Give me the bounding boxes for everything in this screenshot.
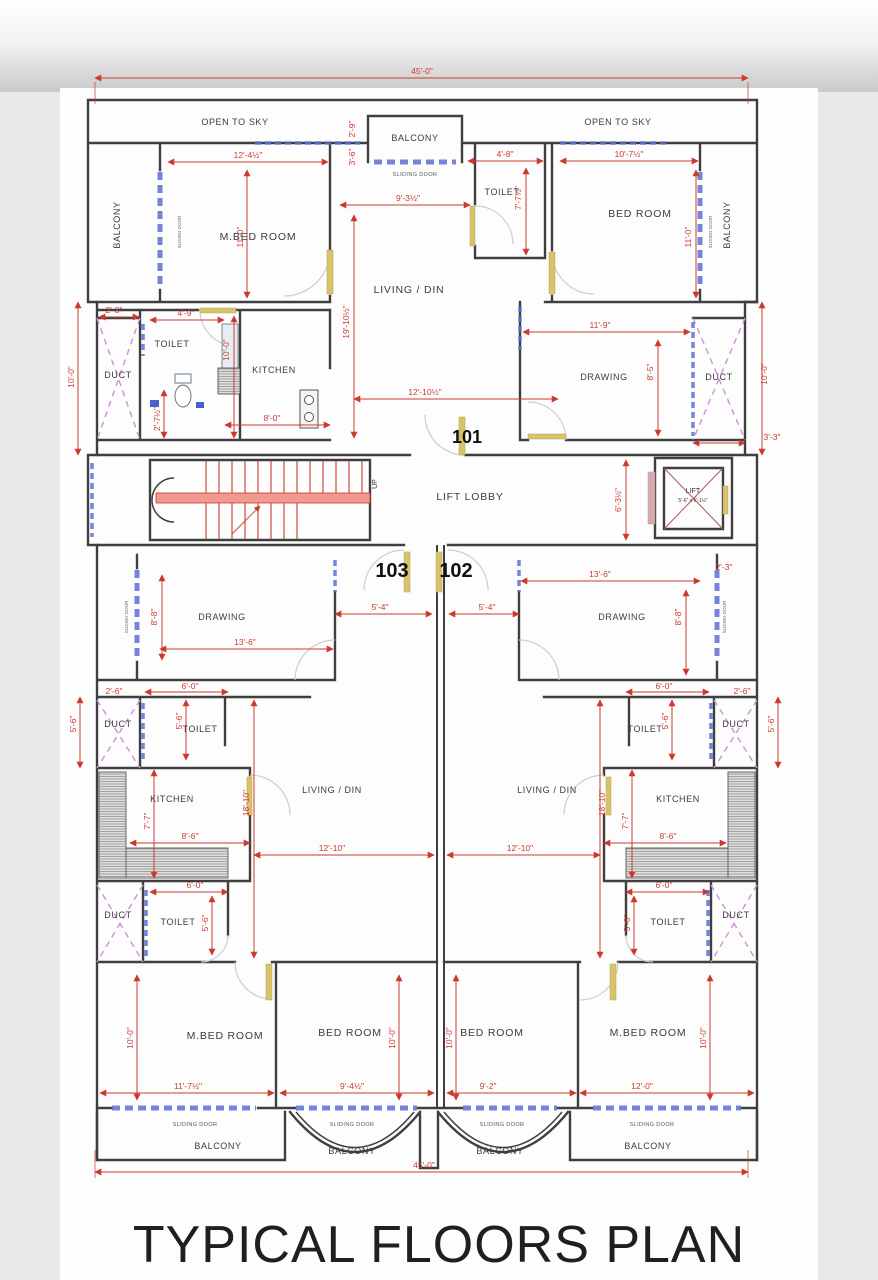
dim-7-7h: 7'-7½"	[513, 186, 523, 210]
dim-9-3: 9'-3½"	[396, 193, 420, 203]
label-living-right: LIVING / DIN	[517, 785, 577, 795]
label-sliding-door-top: SLIDING DOOR	[393, 172, 438, 178]
dim-2-9: 2'-9"	[347, 121, 357, 138]
dim-8-8-left: 8'-8"	[149, 609, 159, 626]
page-title: TYPICAL FLOORS PLAN	[133, 1216, 745, 1274]
dim-4-8: 4'-8"	[497, 149, 514, 159]
dim-2-6-left: 2'-6"	[106, 686, 123, 696]
unit-number-101: 101	[452, 427, 482, 447]
dim-10-0-bed3: 10'-0"	[444, 1027, 454, 1049]
dim-10-0-margin-right: 10'-0"	[759, 363, 769, 385]
counter-hatch	[218, 368, 240, 394]
label-living-upper: LIVING / DIN	[374, 284, 445, 296]
label-toilet-upper-left: TOILET	[155, 339, 190, 349]
floor-plan-canvas: OPEN TO SKY OPEN TO SKY BALCONY SLIDING …	[0, 0, 878, 1280]
label-duct-lower-left: DUCT	[104, 910, 131, 920]
label-kitchen-right: KITCHEN	[656, 794, 700, 804]
burner-icon	[305, 396, 314, 405]
label-toilet-lower-left: TOILET	[161, 917, 196, 927]
dim-8-6-right: 8'-6"	[660, 831, 677, 841]
dim-overall-top: 45'-0"	[411, 66, 433, 76]
wc-icon	[175, 385, 191, 407]
label-mbed-lower-left: M.BED ROOM	[187, 1030, 264, 1042]
dim-5-6-margin-left: 5'-6"	[68, 716, 78, 733]
label-open-to-sky-right: OPEN TO SKY	[584, 117, 651, 127]
label-sliding-door-left: SLIDING DOOR	[177, 215, 182, 249]
dim-3-3: 3'-3"	[764, 432, 781, 442]
label-bed-lower-right: BED ROOM	[460, 1027, 524, 1039]
label-duct-mid-left: DUCT	[104, 719, 131, 729]
label-toilet-lower-right: TOILET	[651, 917, 686, 927]
dim-11-7: 11'-7½"	[174, 1081, 202, 1091]
label-living-left: LIVING / DIN	[302, 785, 362, 795]
label-kitchen-left: KITCHEN	[150, 794, 194, 804]
dim-10-0-bed1: 10'-0"	[125, 1027, 135, 1049]
label-balcony-b2: BALCONY	[328, 1146, 375, 1156]
label-lift: LIFT	[686, 488, 701, 495]
dim-5-6-margin-right: 5'-6"	[766, 716, 776, 733]
label-sliding-door-b1: SLIDING DOOR	[173, 1122, 218, 1128]
label-balcony-right: BALCONY	[722, 201, 732, 248]
label-drawing-lower-left: DRAWING	[198, 612, 245, 622]
label-mbed-upper: M.BED ROOM	[220, 231, 297, 243]
dim-18-10-left: 18'-10"	[241, 790, 251, 816]
dim-2-6-right: 2'-6"	[734, 686, 751, 696]
dim-2-3-lower-right: 2'-3"	[716, 562, 733, 572]
label-toilet-mid-right: TOILET	[628, 724, 663, 734]
label-mbed-lower-right: M.BED ROOM	[610, 1027, 687, 1039]
label-lift-lobby: LIFT LOBBY	[436, 491, 503, 503]
dim-19-10: 19'-10½"	[341, 305, 351, 338]
dim-12-4: 12'-4½"	[234, 150, 263, 160]
lift-door	[648, 472, 655, 524]
dim-4-9: 4'-9"	[178, 308, 195, 318]
dim-12-10-left: 12'-10"	[319, 843, 345, 853]
label-sliding-door-b4: SLIDING DOOR	[630, 1122, 675, 1128]
label-duct-mid-right: DUCT	[722, 719, 749, 729]
label-drawing-upper: DRAWING	[580, 372, 627, 382]
label-duct-lower-right: DUCT	[722, 910, 749, 920]
label-lift-size: 5'-6" x 6'-1½"	[678, 497, 708, 504]
dim-9-4: 9'-4½"	[340, 1081, 364, 1091]
label-balcony-left: BALCONY	[112, 201, 122, 248]
dim-12-0: 12'-0"	[631, 1081, 653, 1091]
label-sliding-door-right: SLIDING DOOR	[708, 215, 713, 249]
dim-10-0-bed2: 10'-0"	[387, 1027, 397, 1049]
wc-tank	[175, 374, 191, 383]
dim-11-0-left: 11'-0"	[235, 226, 245, 247]
label-bed-upper: BED ROOM	[608, 208, 672, 220]
label-toilet-mid-left: TOILET	[183, 724, 218, 734]
label-sliding-door-b2: SLIDING DOOR	[330, 1122, 375, 1128]
label-duct-upper-right: DUCT	[705, 372, 732, 382]
dim-10-0-kitchen: 10'-0"	[221, 339, 231, 361]
dim-13-6-left: 13'-6"	[234, 637, 256, 647]
dim-10-0-bed4: 10'-0"	[698, 1027, 708, 1049]
label-sliding-door-lower-left: SLIDING DOOR	[124, 600, 129, 634]
dim-5-4-left: 5'-4"	[372, 602, 389, 612]
dim-overall-bottom: 45'-0"	[413, 1160, 435, 1170]
label-kitchen-upper: KITCHEN	[252, 365, 296, 375]
dim-9-2: 9'-2"	[480, 1081, 497, 1091]
dim-8-6-left: 8'-6"	[182, 831, 199, 841]
label-bed-lower-left: BED ROOM	[318, 1027, 382, 1039]
label-drawing-lower-right: DRAWING	[598, 612, 645, 622]
dim-6-0-bl: 6'-0"	[187, 880, 204, 890]
dim-12-10-right: 12'-10"	[507, 843, 533, 853]
dim-2-3-upper: 2'-3"	[106, 305, 123, 315]
dim-5-0-br: 5'-0"	[622, 915, 632, 932]
label-balcony-b3: BALCONY	[476, 1146, 523, 1156]
dim-18-10-right: 18'-10"	[597, 790, 607, 816]
dim-6-0-tl: 6'-0"	[182, 681, 199, 691]
burner-icon	[305, 413, 314, 422]
label-balcony-top: BALCONY	[391, 133, 438, 143]
dim-12-10h: 12'-10½"	[408, 387, 441, 397]
dim-13-6-right: 13'-6"	[589, 569, 611, 579]
label-duct-upper-left: DUCT	[104, 370, 131, 380]
dim-2-7: 2'-7½"	[152, 407, 162, 431]
dim-8-5: 8'-5"	[645, 364, 655, 381]
dim-10-0-margin-left: 10'-0"	[66, 366, 76, 388]
toilet-accessory-icon	[150, 400, 159, 407]
dim-5-6-bl: 5'-6"	[200, 915, 210, 932]
dim-11-0-right: 11'-0"	[683, 226, 693, 247]
dim-6-3: 6'-3½"	[613, 488, 623, 512]
label-sliding-door-lower-right: SLIDING DOOR	[722, 600, 727, 634]
sheet-background	[0, 0, 878, 1280]
label-up: UP	[372, 479, 379, 489]
label-balcony-b1: BALCONY	[194, 1141, 241, 1151]
dim-7-7-left: 7'-7"	[142, 813, 152, 830]
dim-8-8-right: 8'-8"	[673, 609, 683, 626]
dim-7-7-right: 7'-7"	[620, 813, 630, 830]
dim-5-4-right: 5'-4"	[479, 602, 496, 612]
dim-10-7: 10'-7½"	[615, 149, 644, 159]
label-open-to-sky-left: OPEN TO SKY	[201, 117, 268, 127]
unit-number-103: 103	[375, 560, 408, 582]
label-balcony-b4: BALCONY	[624, 1141, 671, 1151]
unit-number-102: 102	[439, 560, 472, 582]
dim-5-6-tr: 5'-6"	[660, 713, 670, 730]
dim-5-6-tl: 5'-6"	[174, 713, 184, 730]
dim-6-0-br: 6'-0"	[656, 880, 673, 890]
dim-6-0-tr: 6'-0"	[656, 681, 673, 691]
toilet-accessory-icon	[196, 402, 204, 408]
dim-3-6: 3'-6"	[347, 149, 357, 166]
label-sliding-door-b3: SLIDING DOOR	[480, 1122, 525, 1128]
dim-11-9: 11'-9"	[589, 320, 610, 330]
dim-8-0: 8'-0"	[264, 413, 281, 423]
